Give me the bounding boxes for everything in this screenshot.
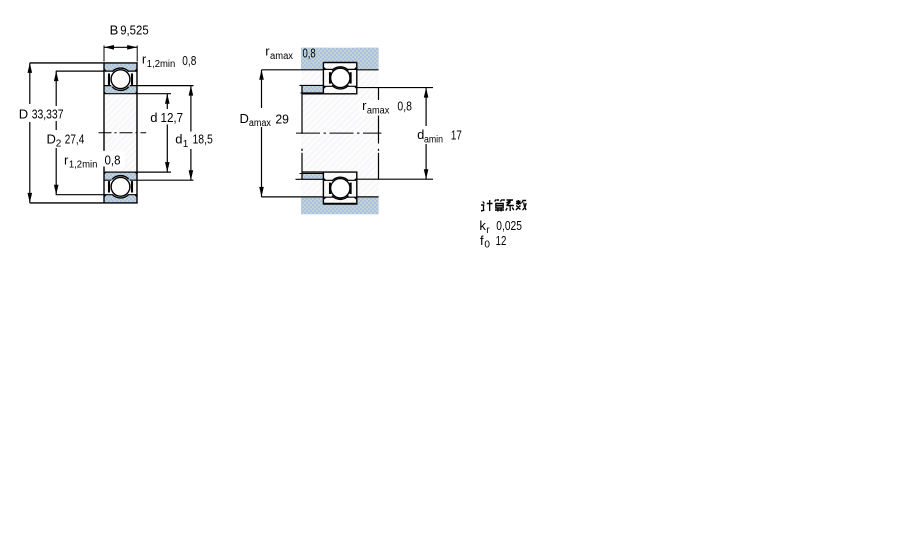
svg-text:B: B bbox=[110, 23, 119, 38]
svg-text:amax: amax bbox=[270, 51, 293, 62]
svg-text:0,8: 0,8 bbox=[303, 46, 316, 61]
svg-text:f: f bbox=[480, 233, 484, 248]
svg-text:0,8: 0,8 bbox=[105, 152, 121, 167]
svg-text:amax: amax bbox=[367, 105, 390, 116]
svg-text:0,8: 0,8 bbox=[397, 99, 412, 114]
svg-text:0,8: 0,8 bbox=[182, 53, 196, 68]
svg-text:d: d bbox=[175, 132, 182, 147]
svg-text:29: 29 bbox=[275, 111, 289, 126]
svg-text:12: 12 bbox=[496, 233, 507, 248]
svg-text:17: 17 bbox=[451, 128, 462, 143]
svg-text:18,5: 18,5 bbox=[193, 132, 213, 147]
svg-text:D: D bbox=[47, 131, 56, 146]
svg-text:9,525: 9,525 bbox=[120, 23, 149, 38]
svg-text:12,7: 12,7 bbox=[161, 110, 184, 125]
svg-text:D: D bbox=[19, 106, 28, 121]
svg-text:1: 1 bbox=[183, 139, 189, 150]
svg-text:amin: amin bbox=[424, 135, 443, 146]
svg-text:1,2min: 1,2min bbox=[147, 59, 176, 70]
svg-text:D: D bbox=[240, 111, 249, 126]
svg-text:amax: amax bbox=[249, 118, 271, 129]
svg-text:d: d bbox=[150, 110, 157, 125]
svg-text:r: r bbox=[486, 225, 490, 236]
svg-text:0,025: 0,025 bbox=[496, 218, 522, 233]
svg-text:1,2min: 1,2min bbox=[69, 160, 98, 171]
svg-text:0: 0 bbox=[484, 240, 490, 251]
svg-text:2: 2 bbox=[56, 139, 62, 150]
svg-text:27,4: 27,4 bbox=[65, 131, 85, 146]
svg-text:33,337: 33,337 bbox=[32, 106, 64, 121]
